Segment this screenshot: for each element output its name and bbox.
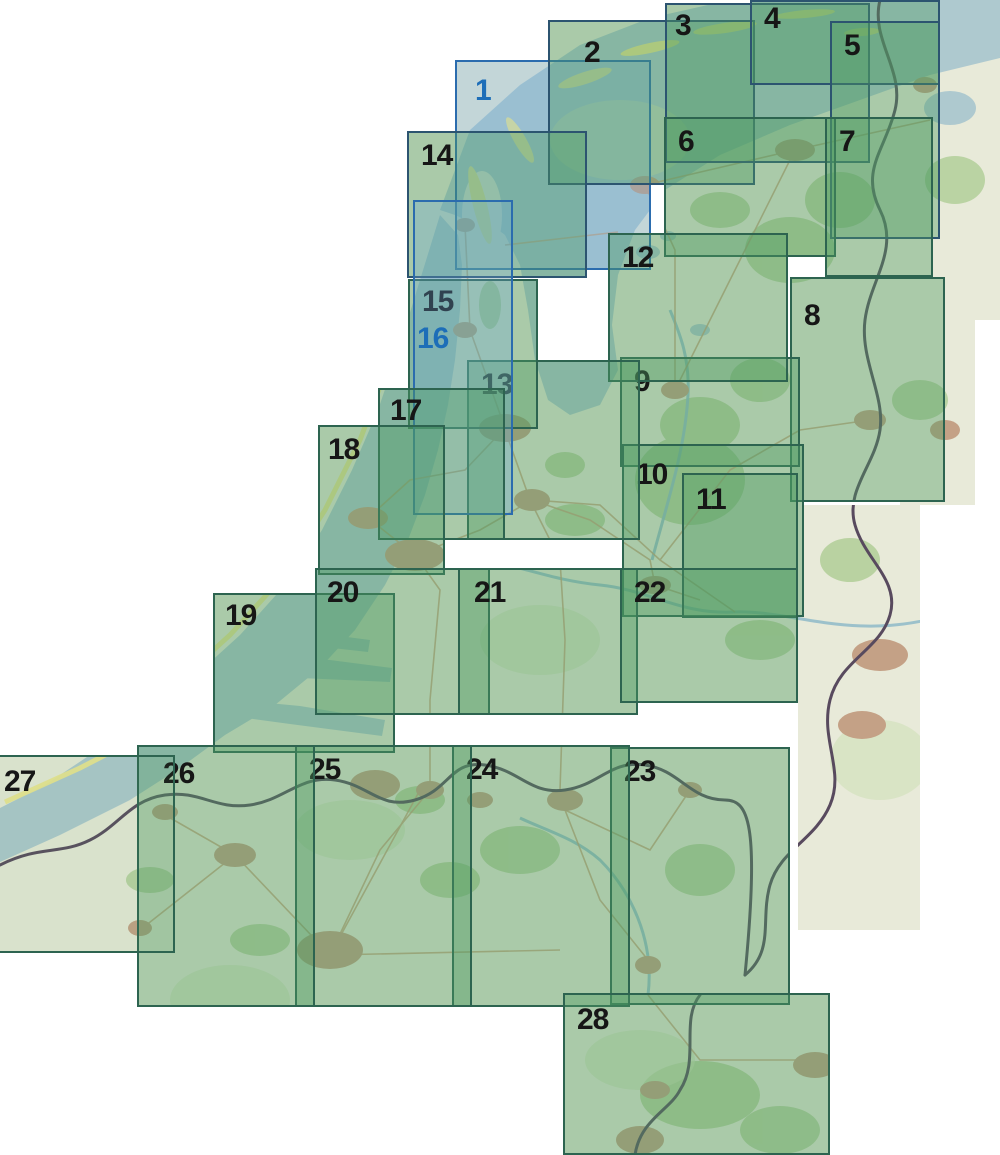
sheet-18[interactable]: 18: [318, 425, 445, 575]
sheet-number: 11: [696, 485, 726, 515]
sheet-number: 12: [622, 243, 653, 273]
sheet-number: 16: [417, 324, 448, 354]
sheet-number: 1: [475, 76, 491, 106]
sheet-grid: 1234567891011121314151617181920212223242…: [0, 0, 1000, 1155]
sheet-number: 2: [584, 38, 600, 68]
sheet-21[interactable]: 21: [458, 568, 638, 715]
sheet-22[interactable]: 22: [620, 568, 798, 703]
sheet-number: 8: [804, 301, 820, 331]
sheet-number: 22: [634, 578, 665, 608]
sheet-number: 28: [577, 1005, 608, 1035]
sheet-number: 6: [678, 127, 694, 157]
sheet-number: 20: [327, 578, 358, 608]
sheet-number: 14: [421, 141, 452, 171]
sheet-number: 3: [675, 11, 691, 41]
sheet-8[interactable]: 8: [790, 277, 945, 502]
sheet-23[interactable]: 23: [610, 747, 790, 1005]
sheet-number: 27: [4, 767, 35, 797]
sheet-number: 7: [839, 127, 855, 157]
sheet-number: 19: [225, 601, 256, 631]
sheet-28[interactable]: 28: [563, 993, 830, 1155]
sheet-number: 21: [474, 578, 505, 608]
map-index-canvas: 1234567891011121314151617181920212223242…: [0, 0, 1000, 1155]
sheet-27[interactable]: 27: [0, 755, 175, 953]
sheet-number: 5: [844, 31, 860, 61]
sheet-number: 4: [764, 4, 780, 34]
sheet-number: 10: [636, 460, 667, 490]
sheet-24[interactable]: 24: [452, 745, 630, 1007]
sheet-25[interactable]: 25: [295, 745, 472, 1007]
sheet-number: 17: [390, 396, 421, 426]
sheet-7[interactable]: 7: [825, 117, 933, 277]
sheet-number: 18: [328, 435, 359, 465]
